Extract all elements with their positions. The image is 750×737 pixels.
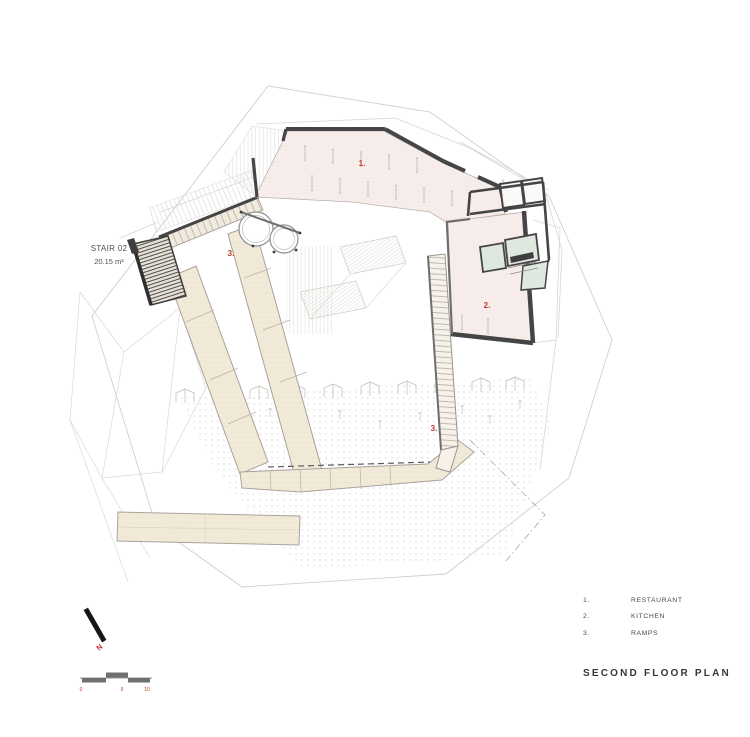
legend-number: 2. [583, 613, 631, 620]
drawing-sheet: STAIR 02 20.15 m² 1. 2. 3. 3. N 0 5 10 1… [0, 0, 750, 737]
wet-room-2 [480, 243, 506, 272]
kitchen-area [446, 211, 533, 344]
legend-item-kitchen: 2. KITCHEN [583, 609, 750, 626]
legend-item-restaurant: 1. RESTAURANT [583, 592, 750, 609]
scale-bar: 0 5 10 [80, 673, 152, 694]
legend-item-ramps: 3. RAMPS [583, 625, 750, 642]
legend-number: 3. [583, 630, 631, 637]
legend-label: KITCHEN [631, 613, 750, 620]
scale-tick-0: 0 [80, 687, 83, 693]
scale-tick-10: 10 [144, 687, 150, 693]
wet-room-1 [505, 234, 539, 266]
stair-area-label: 20.15 m² [94, 257, 124, 266]
legend-number: 1. [583, 597, 631, 604]
sheet-title: SECOND FLOOR PLAN [583, 668, 731, 679]
courtyard-pergolas [286, 236, 406, 334]
label-kitchen: 2. [484, 301, 491, 310]
stair-02-block [127, 236, 186, 305]
legend-label: RESTAURANT [631, 597, 750, 604]
label-ramp-upper: 3. [228, 249, 235, 258]
label-restaurant: 1. [359, 159, 366, 168]
north-label: N [95, 642, 105, 652]
wet-room-3 [521, 261, 548, 290]
label-ramp-lower: 3. [431, 424, 438, 433]
scale-tick-5: 5 [121, 687, 124, 693]
lower-terrace-bar [117, 512, 300, 545]
legend-label: RAMPS [631, 630, 750, 637]
north-arrow: N [87, 611, 104, 653]
legend: 1. RESTAURANT 2. KITCHEN 3. RAMPS [583, 592, 750, 642]
stair-label: STAIR 02 [91, 244, 128, 253]
